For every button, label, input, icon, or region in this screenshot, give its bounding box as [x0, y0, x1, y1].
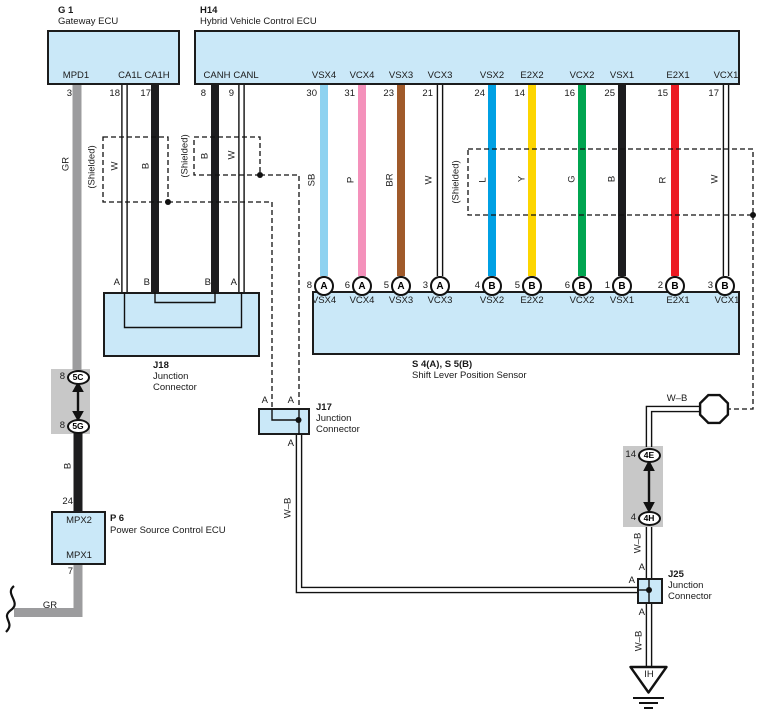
terminal-num: 3: [708, 280, 713, 291]
terminal-circle: A: [352, 276, 372, 296]
terminal-circle: B: [522, 276, 542, 296]
p6-pin-label: MPX2: [66, 515, 92, 526]
terminal-num: 3: [423, 280, 428, 291]
wire-color-b: B: [200, 153, 211, 159]
j25-code: J25: [668, 569, 684, 580]
sensor-pin-label: VCX2: [570, 295, 595, 306]
j17-terminal: A: [288, 395, 294, 406]
sensor-pin-label: VSX1: [610, 295, 634, 306]
shielded-label: (Shielded): [451, 160, 462, 203]
g1-pin-label: CA1L: [118, 70, 142, 81]
sensor-pin-label: VSX2: [480, 295, 504, 306]
j18-name: Junction: [153, 371, 188, 382]
terminal-circle: A: [314, 276, 334, 296]
j17-name: Connector: [316, 424, 360, 435]
g1-title: Gateway ECU: [58, 16, 118, 27]
g1-pin-num: 3: [67, 88, 72, 99]
h14-pin-label: E2X2: [520, 70, 543, 81]
p6-pin-label: MPX1: [66, 550, 92, 561]
j17-code: J17: [316, 402, 332, 413]
j18-code: J18: [153, 360, 169, 371]
sensor-pin-label: VCX1: [715, 295, 740, 306]
j17-terminal: A: [288, 438, 294, 449]
connector-code: 5C: [73, 372, 84, 382]
terminal-letter: B: [721, 281, 728, 292]
g1-pin-num: 18: [109, 88, 120, 99]
j18-name: Connector: [153, 382, 197, 393]
shielded-label: (Shielded): [180, 134, 191, 177]
j25-terminal: A: [639, 607, 645, 618]
sensor-pin-label: VCX3: [428, 295, 453, 306]
wire-color-wb: W–B: [283, 498, 294, 519]
wire-color-wb: W–B: [634, 631, 645, 652]
terminal-letter: A: [397, 281, 404, 292]
junction-dots: [165, 172, 756, 593]
connector-4e-num: 14: [625, 449, 636, 460]
g1-pin-num: 17: [140, 88, 151, 99]
j18-terminal: B: [205, 277, 211, 288]
h14-pin-label: VCX2: [570, 70, 595, 81]
wire-color-r: R: [658, 177, 669, 184]
terminal-circle: B: [612, 276, 632, 296]
connector-code: 4H: [644, 513, 655, 523]
connector-4h-num: 4: [631, 512, 636, 523]
h14-code: H14: [200, 5, 217, 16]
j18-terminal: A: [231, 277, 237, 288]
wire-color-sb: SB: [307, 174, 318, 187]
terminal-num: 1: [605, 280, 610, 291]
terminal-circle: B: [482, 276, 502, 296]
wire-color-b: B: [63, 463, 74, 469]
h14-pin-label: E2X1: [666, 70, 689, 81]
h14-pin-num: 21: [422, 88, 433, 99]
sensor-pin-label: E2X2: [520, 295, 543, 306]
terminal-circle: B: [715, 276, 735, 296]
h14-pin-label: VSX1: [610, 70, 634, 81]
sensor-pin-label: E2X1: [666, 295, 689, 306]
terminal-letter: B: [671, 281, 678, 292]
terminal-num: 2: [658, 280, 663, 291]
terminal-letter: B: [488, 281, 495, 292]
wire-color-br: BR: [385, 173, 396, 186]
ground-code: IH: [644, 669, 654, 680]
connector-arrows: [73, 383, 654, 513]
h14-pin-num: 23: [383, 88, 394, 99]
sensor-code: S 4(A), S 5(B): [412, 359, 472, 370]
wire-layer: [0, 0, 765, 722]
h14-pin-num: 9: [229, 88, 234, 99]
terminal-letter: B: [578, 281, 585, 292]
g1-code: G 1: [58, 5, 73, 16]
g1-pin-label: MPD1: [63, 70, 89, 81]
wire-color-gr: GR: [61, 157, 72, 171]
p6-code: P 6: [110, 513, 124, 524]
shield-ground-octagon: [700, 395, 728, 423]
wire-color-b: B: [607, 176, 618, 182]
wire-color-wb: W–B: [633, 533, 644, 554]
p6-title: Power Source Control ECU: [110, 525, 226, 536]
terminal-num: 6: [565, 280, 570, 291]
sensor-pin-label: VSX4: [312, 295, 336, 306]
wire-color-b: B: [141, 163, 152, 169]
j25-name: Junction: [668, 580, 703, 591]
connector-5c-oval: 5C: [67, 370, 90, 385]
p6-pin-num: 7: [68, 566, 73, 577]
wire-color-w: W: [227, 151, 238, 160]
h14-pin-label: CANL: [233, 70, 258, 81]
h14-pin-label: VCX3: [428, 70, 453, 81]
terminal-num: 4: [475, 280, 480, 291]
wire-color-wb: W–B: [667, 393, 688, 404]
h14-pin-num: 16: [564, 88, 575, 99]
j18-terminal: B: [144, 277, 150, 288]
connector-code: 5G: [72, 421, 83, 431]
terminal-letter: A: [436, 281, 443, 292]
h14-pin-label: VSX3: [389, 70, 413, 81]
wire-color-p: P: [346, 177, 357, 183]
h14-pin-num: 15: [657, 88, 668, 99]
j25-name: Connector: [668, 591, 712, 602]
h14-pin-num: 31: [344, 88, 355, 99]
g1-pin-label: CA1H: [144, 70, 169, 81]
terminal-num: 5: [384, 280, 389, 291]
h14-pin-label: CANH: [204, 70, 231, 81]
j18-terminal: A: [114, 277, 120, 288]
j17-name: Junction: [316, 413, 351, 424]
wire-color-g: G: [567, 175, 578, 182]
j25-terminal: A: [639, 562, 645, 573]
connector-4e-oval: 4E: [638, 448, 661, 463]
h14-pin-label: VCX4: [350, 70, 375, 81]
h14-pin-num: 14: [514, 88, 525, 99]
wire-color-y: Y: [517, 176, 528, 182]
h14-pin-label: VCX1: [714, 70, 739, 81]
terminal-num: 8: [307, 280, 312, 291]
terminal-num: 6: [345, 280, 350, 291]
h14-pin-label: VSX2: [480, 70, 504, 81]
wire-color-l: L: [478, 177, 489, 182]
terminal-letter: B: [618, 281, 625, 292]
terminal-letter: B: [528, 281, 535, 292]
wire-color-gr: GR: [43, 600, 57, 611]
terminal-num: 5: [515, 280, 520, 291]
sensor-title: Shift Lever Position Sensor: [412, 370, 527, 381]
terminal-circle: B: [572, 276, 592, 296]
terminal-circle: A: [430, 276, 450, 296]
j25-terminal: A: [629, 575, 635, 586]
h14-pin-num: 30: [306, 88, 317, 99]
terminal-circle: B: [665, 276, 685, 296]
j17-terminal: A: [262, 395, 268, 406]
terminal-circle: A: [391, 276, 411, 296]
junction-internals: [125, 292, 650, 604]
connector-5g-num: 8: [60, 420, 65, 431]
continuation-squiggle: [6, 586, 15, 632]
h14-title: Hybrid Vehicle Control ECU: [200, 16, 317, 27]
connector-5g-oval: 5G: [67, 419, 90, 434]
shielded-label: (Shielded): [87, 145, 98, 188]
connector-5c-num: 8: [60, 371, 65, 382]
wiring-diagram: G 1 Gateway ECU H14 Hybrid Vehicle Contr…: [0, 0, 765, 722]
wire-color-w: W: [710, 175, 721, 184]
p6-pin-num: 24: [62, 496, 73, 507]
sensor-pin-label: VSX3: [389, 295, 413, 306]
h14-pin-num: 17: [708, 88, 719, 99]
wire-color-w: W: [424, 176, 435, 185]
terminal-letter: A: [320, 281, 327, 292]
terminal-letter: A: [358, 281, 365, 292]
h14-pin-label: VSX4: [312, 70, 336, 81]
h14-pin-num: 8: [201, 88, 206, 99]
h14-pin-num: 25: [604, 88, 615, 99]
h14-pin-num: 24: [474, 88, 485, 99]
connector-4h-oval: 4H: [638, 511, 661, 526]
wire-color-w: W: [110, 162, 121, 171]
sensor-pin-label: VCX4: [350, 295, 375, 306]
connector-code: 4E: [644, 450, 654, 460]
